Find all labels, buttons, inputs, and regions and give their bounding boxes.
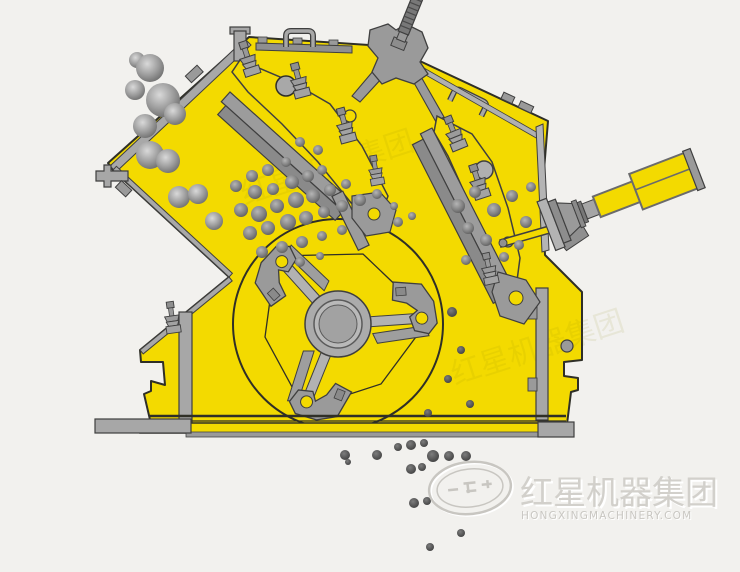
rock [480, 234, 492, 246]
rock [372, 189, 382, 199]
rock [280, 214, 296, 230]
base-plate-left [95, 419, 191, 433]
rock [461, 451, 471, 461]
rock [520, 216, 532, 228]
rock [451, 199, 465, 213]
rock [514, 240, 524, 250]
rock [188, 184, 208, 204]
watermark-text-en: HONGXINGMACHINERY.COM [521, 510, 692, 522]
rock [354, 194, 366, 206]
watermark-text-cn: 红星机器集团 [520, 473, 718, 512]
curtain1-hook-notch [368, 208, 380, 220]
impact-crusher-diagram: 红星机器集团 红星机器集团 [0, 0, 740, 572]
rock [256, 246, 268, 258]
rock [340, 450, 350, 460]
rock [281, 157, 291, 167]
rock [418, 463, 426, 471]
rock [317, 231, 327, 241]
curtain2-hook-notch [509, 291, 523, 305]
rock [406, 440, 416, 450]
liner-tab-2 [293, 38, 302, 44]
rock [168, 186, 190, 208]
rock [457, 346, 465, 354]
rock [296, 236, 308, 248]
rock [469, 186, 481, 198]
rock [390, 202, 398, 210]
cylinder-link-pin [499, 239, 507, 247]
rock [427, 450, 439, 462]
bracket-body [368, 24, 428, 84]
rock [345, 459, 351, 465]
rotor-shaft [319, 305, 357, 343]
rock [251, 206, 267, 222]
rock [205, 212, 223, 230]
diagram-canvas: 红星机器集团 红星机器集团 [0, 0, 740, 572]
rock [164, 103, 186, 125]
rock [336, 200, 348, 212]
rock [499, 252, 509, 262]
rock [318, 206, 330, 218]
rock [288, 192, 304, 208]
rock [313, 145, 323, 155]
rock [299, 211, 313, 225]
rock [295, 257, 305, 267]
rock [262, 164, 274, 176]
rock [506, 190, 518, 202]
rock [136, 54, 164, 82]
rock [420, 439, 428, 447]
rock [317, 165, 327, 175]
rock [372, 450, 382, 460]
rock [316, 252, 324, 260]
rock [234, 203, 248, 217]
base-sill [140, 423, 572, 433]
liner-tab-1 [258, 37, 267, 43]
rock [408, 212, 416, 220]
rock [302, 170, 314, 182]
rock [409, 498, 419, 508]
frame-hole [561, 340, 573, 352]
rock [295, 137, 305, 147]
rock [466, 400, 474, 408]
rock [337, 225, 347, 235]
rock [462, 222, 474, 234]
rock [261, 221, 275, 235]
rock [457, 529, 465, 537]
rock [267, 183, 279, 195]
rock [461, 255, 471, 265]
rock [487, 203, 501, 217]
rock [447, 307, 457, 317]
rock [341, 179, 351, 189]
base-rail [186, 432, 542, 437]
side-frame-column-right [536, 288, 548, 420]
rock [444, 451, 454, 461]
rock [156, 149, 180, 173]
base-plate-right [538, 422, 574, 437]
rock [133, 114, 157, 138]
rock [246, 170, 258, 182]
column-tab-2 [528, 378, 537, 391]
rock [306, 189, 320, 203]
rock [394, 443, 402, 451]
rock [248, 185, 262, 199]
rock [324, 184, 336, 196]
rock [285, 175, 299, 189]
rock [406, 464, 416, 474]
rock [444, 375, 452, 383]
rock [243, 226, 257, 240]
rock [270, 199, 284, 213]
rock [424, 409, 432, 417]
rock [426, 543, 434, 551]
rock [276, 241, 288, 253]
rock [125, 80, 145, 100]
rock [526, 182, 536, 192]
rock [230, 180, 242, 192]
rock [393, 217, 403, 227]
